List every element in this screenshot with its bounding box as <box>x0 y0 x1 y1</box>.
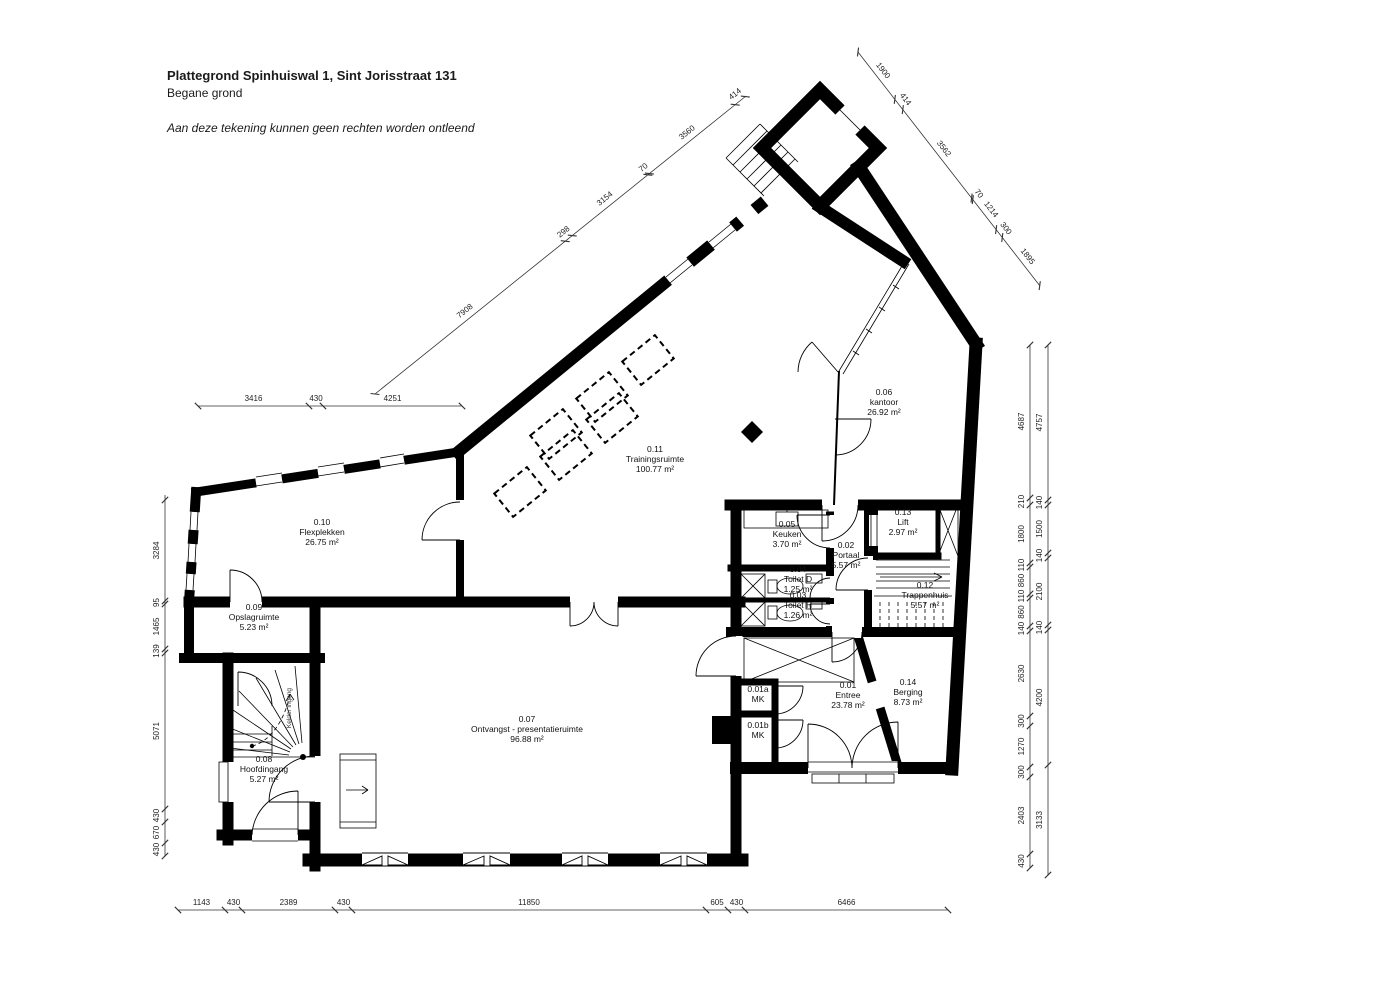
dim-label: 414 <box>727 86 743 102</box>
dim-label: 430 <box>337 898 351 907</box>
room-label-0.07: 0.07Ontvangst - presentatieruimte96.88 m… <box>471 714 583 744</box>
floorplan-page: Plattegrond Spinhuiswal 1, Sint Jorisstr… <box>0 0 1400 990</box>
dim-label: 1214 <box>982 200 1000 220</box>
dim-label: 1900 <box>874 61 892 81</box>
dim-label: 210 <box>1017 494 1026 508</box>
room-label-0.11: 0.11Trainingsruimte100.77 m² <box>626 444 685 474</box>
room-label-0.13: 0.13Lift2.97 m² <box>889 507 918 537</box>
dim-label: 300 <box>1017 714 1026 728</box>
dim-label: 2630 <box>1017 664 1026 682</box>
dim-label: 110 <box>1017 589 1026 602</box>
dim-label: 110 <box>1017 558 1026 571</box>
dim-label: 1143 <box>193 898 211 907</box>
dim-label: 430 <box>227 898 241 907</box>
walls <box>184 90 976 866</box>
dim-label: 300 <box>998 220 1014 236</box>
room-label-0.08: 0.08Hoofdingang5.27 m² <box>240 754 288 784</box>
room-label-0.05: 0.05Keuken3.70 m² <box>773 519 802 549</box>
room-label-0.06: 0.06kantoor26.92 m² <box>867 387 901 417</box>
dim-label: 298 <box>555 224 571 240</box>
room-label-0.10: 0.10Flexplekken26.75 m² <box>299 517 345 547</box>
dim-label: 1465 <box>152 617 161 635</box>
dim-chain-left: 43067043050711391465953284 <box>152 495 168 859</box>
dim-label: 140 <box>1035 548 1044 562</box>
dim-label: 3562 <box>935 139 953 159</box>
dim-label: 860 <box>1017 605 1026 619</box>
room-label-0.03: 0.03Toilet H1.26 m² <box>784 590 813 620</box>
dim-chain-diag-topleft: 79082983154703560414 <box>371 86 750 395</box>
dim-label: 605 <box>710 898 724 907</box>
room-label-0.02: 0.02Portaal5.57 m² <box>832 540 861 570</box>
wall-openings <box>190 110 898 860</box>
dim-label: 4757 <box>1035 413 1044 431</box>
dim-label: 139 <box>152 644 161 658</box>
dim-label: 140 <box>1035 495 1044 509</box>
dim-label: 2100 <box>1035 582 1044 600</box>
dim-label: 3154 <box>595 189 615 208</box>
dim-label: 95 <box>152 598 161 607</box>
room-label-0.01b: 0.01bMK <box>747 720 769 740</box>
dim-label: 430 <box>1017 854 1026 868</box>
dim-label: 430 <box>309 394 323 403</box>
dim-label: 430 <box>152 842 161 856</box>
room-label-0.01a: 0.01aMK <box>747 684 769 704</box>
dim-label: 670 <box>152 825 161 839</box>
room-label-0.14: 0.14Berging8.73 m² <box>893 677 923 707</box>
dim-label: 70 <box>637 161 650 174</box>
annotations: Kelder ingang <box>286 688 293 728</box>
room-labels: 0.01Entree23.78 m²0.01aMK0.01bMK0.02Port… <box>229 387 949 784</box>
dim-chain-right-inner: 4302403300127030026301408601108601101800… <box>1017 342 1033 871</box>
dim-label: 4687 <box>1017 412 1026 430</box>
dim-label: 2403 <box>1017 806 1026 824</box>
dim-label: 70 <box>973 187 986 200</box>
dim-chain-right-outer: 31334200140210014015001404757 <box>1035 342 1051 878</box>
dim-label: 3133 <box>1035 811 1044 829</box>
dim-label: 300 <box>1017 765 1026 779</box>
dim-label: 140 <box>1017 621 1026 635</box>
room-label-0.12: 0.12Trappenhuis5.57 m² <box>902 580 949 610</box>
dim-label: 6466 <box>838 898 856 907</box>
annotation-label: Kelder ingang <box>286 688 293 728</box>
dim-label: 3560 <box>677 123 697 142</box>
dim-label: 860 <box>1017 573 1026 587</box>
dim-label: 1895 <box>1019 247 1037 267</box>
dim-label: 4251 <box>384 394 402 403</box>
dim-chain-bottom: 11434302389430118506054306466 <box>175 898 951 913</box>
dim-label: 5071 <box>152 722 161 740</box>
dim-label: 414 <box>898 91 914 107</box>
floorplan-drawing: 1143430238943011850605430646643067043050… <box>0 0 1400 990</box>
dim-chain-mid-left: 34164304251 <box>195 394 465 409</box>
dim-label: 140 <box>1035 620 1044 634</box>
dim-label: 430 <box>730 898 744 907</box>
room-label-0.01: 0.01Entree23.78 m² <box>831 680 865 710</box>
dim-label: 3284 <box>152 541 161 559</box>
dim-label: 3416 <box>245 394 263 403</box>
dim-label: 430 <box>152 808 161 822</box>
dim-label: 1800 <box>1017 525 1026 543</box>
dim-label: 1270 <box>1017 737 1026 755</box>
dim-label: 7908 <box>455 302 475 321</box>
dim-label: 2389 <box>280 898 298 907</box>
dim-label: 11850 <box>518 898 540 907</box>
dim-label: 1500 <box>1035 520 1044 538</box>
thin-details <box>186 108 909 866</box>
dim-label: 4200 <box>1035 688 1044 706</box>
